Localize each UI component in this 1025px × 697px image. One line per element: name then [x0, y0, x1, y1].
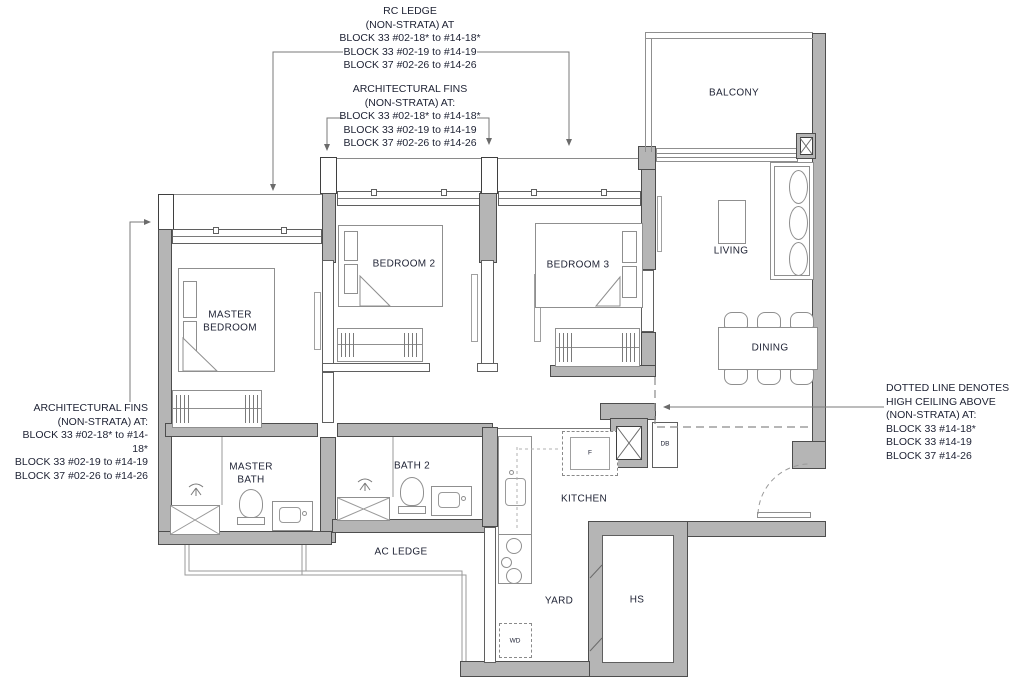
annotation-architectural-fins-left: ARCHITECTURAL FINS (NON-STRATA) AT: BLOC…: [8, 402, 148, 484]
label-db: DB: [660, 441, 669, 448]
ac-ledge-outline: [185, 545, 466, 661]
ac-ledge-outline-inner: [189, 545, 462, 661]
label-yard: YARD: [545, 596, 573, 607]
shaft-x: [617, 427, 641, 459]
label-bath2: BATH 2: [394, 461, 430, 472]
annotation-line: BLOCK 33 #14-18*: [886, 423, 1022, 437]
annotation-line: (NON-STRATA) AT:: [8, 416, 148, 430]
annotation-high-ceiling: DOTTED LINE DENOTES HIGH CEILING ABOVE (…: [886, 382, 1022, 464]
high-ceiling-dashed-line: [655, 377, 812, 427]
annotation-line: DOTTED LINE DENOTES: [886, 382, 1022, 396]
annotation-line: (NON-STRATA) AT: [337, 19, 483, 33]
label-bedroom2: BEDROOM 2: [373, 259, 436, 270]
label-washer-dryer: WD: [510, 638, 521, 645]
floor-plan: RC LEDGE (NON-STRATA) AT BLOCK 33 #02-18…: [0, 0, 1025, 697]
annotation-line: ARCHITECTURAL FINS: [337, 83, 483, 97]
bath2-shower-head-icon: [358, 479, 372, 491]
annotation-line: BLOCK 33 #02-19 to #14-19: [337, 46, 483, 60]
bedroom3-bed-fold: [596, 277, 620, 306]
annotation-line: BLOCK 37 #14-26: [886, 450, 1022, 464]
annotation-line: BLOCK 33 #02-19 to #14-19: [337, 124, 483, 138]
label-dining: DINING: [752, 343, 789, 354]
label-living: LIVING: [714, 246, 749, 257]
bedroom2-bed-fold: [360, 276, 390, 306]
plan-linework: [0, 0, 1025, 697]
annotation-line: BLOCK 37 #02-26 to #14-26: [337, 59, 483, 73]
annotation-line: BLOCK 33 #02-18* to #14-18*: [8, 429, 148, 456]
leader-fins-side: [130, 222, 150, 402]
annotation-line: (NON-STRATA) AT:: [886, 409, 1022, 423]
annotation-line: HIGH CEILING ABOVE: [886, 396, 1022, 410]
annotation-line: RC LEDGE: [337, 5, 483, 19]
label-hs: HS: [630, 595, 645, 606]
label-master-bedroom-1: MASTER: [208, 310, 251, 321]
master-shower-head-icon: [189, 484, 203, 496]
bath2-shower-x: [338, 498, 389, 520]
balcony-column-x: [800, 138, 812, 154]
kitchen-counter-dashed: [517, 447, 560, 531]
label-fridge: F: [588, 450, 592, 457]
label-ac-ledge: AC LEDGE: [375, 547, 428, 558]
label-master-bedroom-2: BEDROOM: [203, 323, 257, 334]
label-master-bath-1: MASTER: [229, 462, 272, 473]
annotation-line: BLOCK 33 #02-19 to #14-19: [8, 456, 148, 470]
master-shower-x: [171, 506, 219, 534]
annotation-line: ARCHITECTURAL FINS: [8, 402, 148, 416]
master-bed-fold: [183, 338, 217, 371]
annotation-line: (NON-STRATA) AT:: [337, 97, 483, 111]
leader-rc-ledge-right: [477, 52, 569, 145]
hs-door-marks: [590, 565, 602, 651]
annotation-line: BLOCK 37 #02-26 to #14-26: [337, 137, 483, 151]
label-master-bath-2: BATH: [237, 475, 264, 486]
label-balcony: BALCONY: [709, 88, 759, 99]
label-bedroom3: BEDROOM 3: [547, 260, 610, 271]
annotation-rc-ledge: RC LEDGE (NON-STRATA) AT BLOCK 33 #02-18…: [337, 5, 483, 73]
annotation-line: BLOCK 33 #02-18* to #14-18*: [337, 110, 483, 124]
annotation-line: BLOCK 37 #02-26 to #14-26: [8, 470, 148, 484]
entry-door-arc: [758, 464, 810, 514]
annotation-line: BLOCK 33 #02-18* to #14-18*: [337, 32, 483, 46]
leader-rc-ledge-left: [273, 52, 343, 190]
annotation-architectural-fins-top: ARCHITECTURAL FINS (NON-STRATA) AT: BLOC…: [337, 83, 483, 151]
annotation-line: BLOCK 33 #14-19: [886, 436, 1022, 450]
label-kitchen: KITCHEN: [561, 494, 607, 505]
